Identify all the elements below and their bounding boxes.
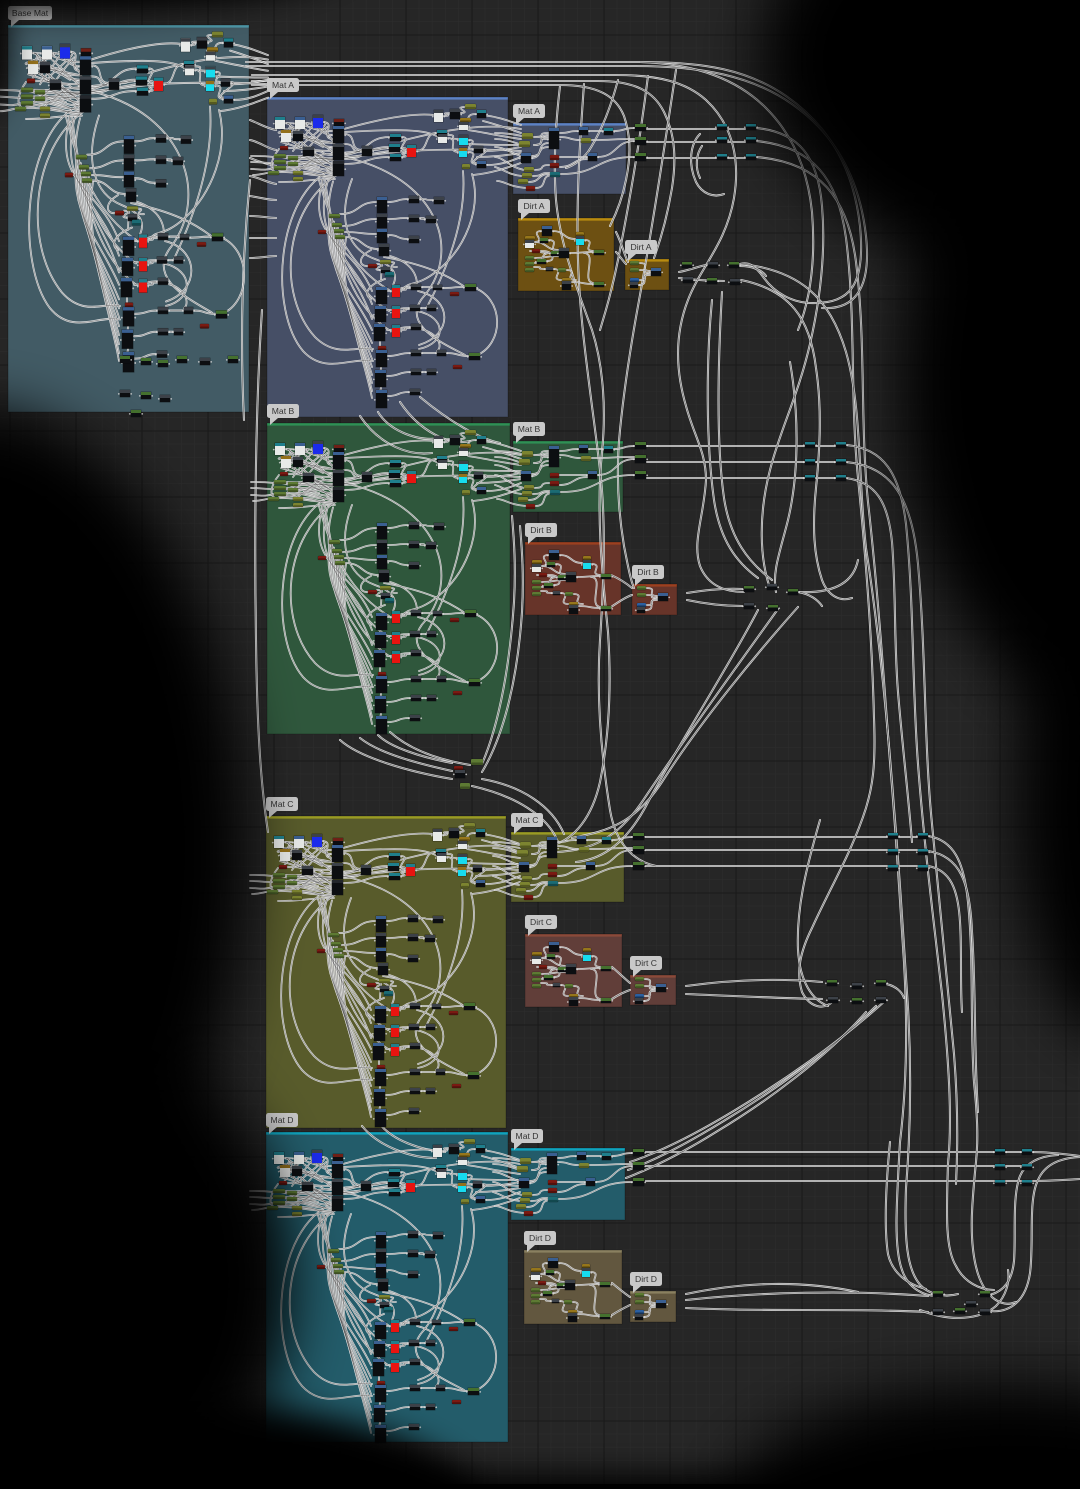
svg-text:Mat B: Mat B	[518, 424, 541, 434]
svg-text:Mat C: Mat C	[516, 815, 539, 825]
svg-text:Dirt C: Dirt C	[635, 958, 657, 968]
svg-text:Dirt A: Dirt A	[523, 201, 544, 211]
svg-text:Mat D: Mat D	[516, 1131, 539, 1141]
svg-text:Mat D: Mat D	[271, 1115, 294, 1125]
svg-text:Dirt A: Dirt A	[630, 242, 651, 252]
svg-text:Mat C: Mat C	[271, 799, 294, 809]
svg-text:Mat A: Mat A	[518, 106, 540, 116]
svg-text:Mat A: Mat A	[272, 80, 294, 90]
svg-text:Dirt D: Dirt D	[529, 1233, 551, 1243]
svg-text:Mat B: Mat B	[272, 406, 295, 416]
svg-text:Dirt B: Dirt B	[530, 525, 552, 535]
svg-text:Dirt B: Dirt B	[637, 567, 659, 577]
svg-text:Dirt C: Dirt C	[530, 917, 552, 927]
svg-text:Dirt D: Dirt D	[635, 1274, 657, 1284]
